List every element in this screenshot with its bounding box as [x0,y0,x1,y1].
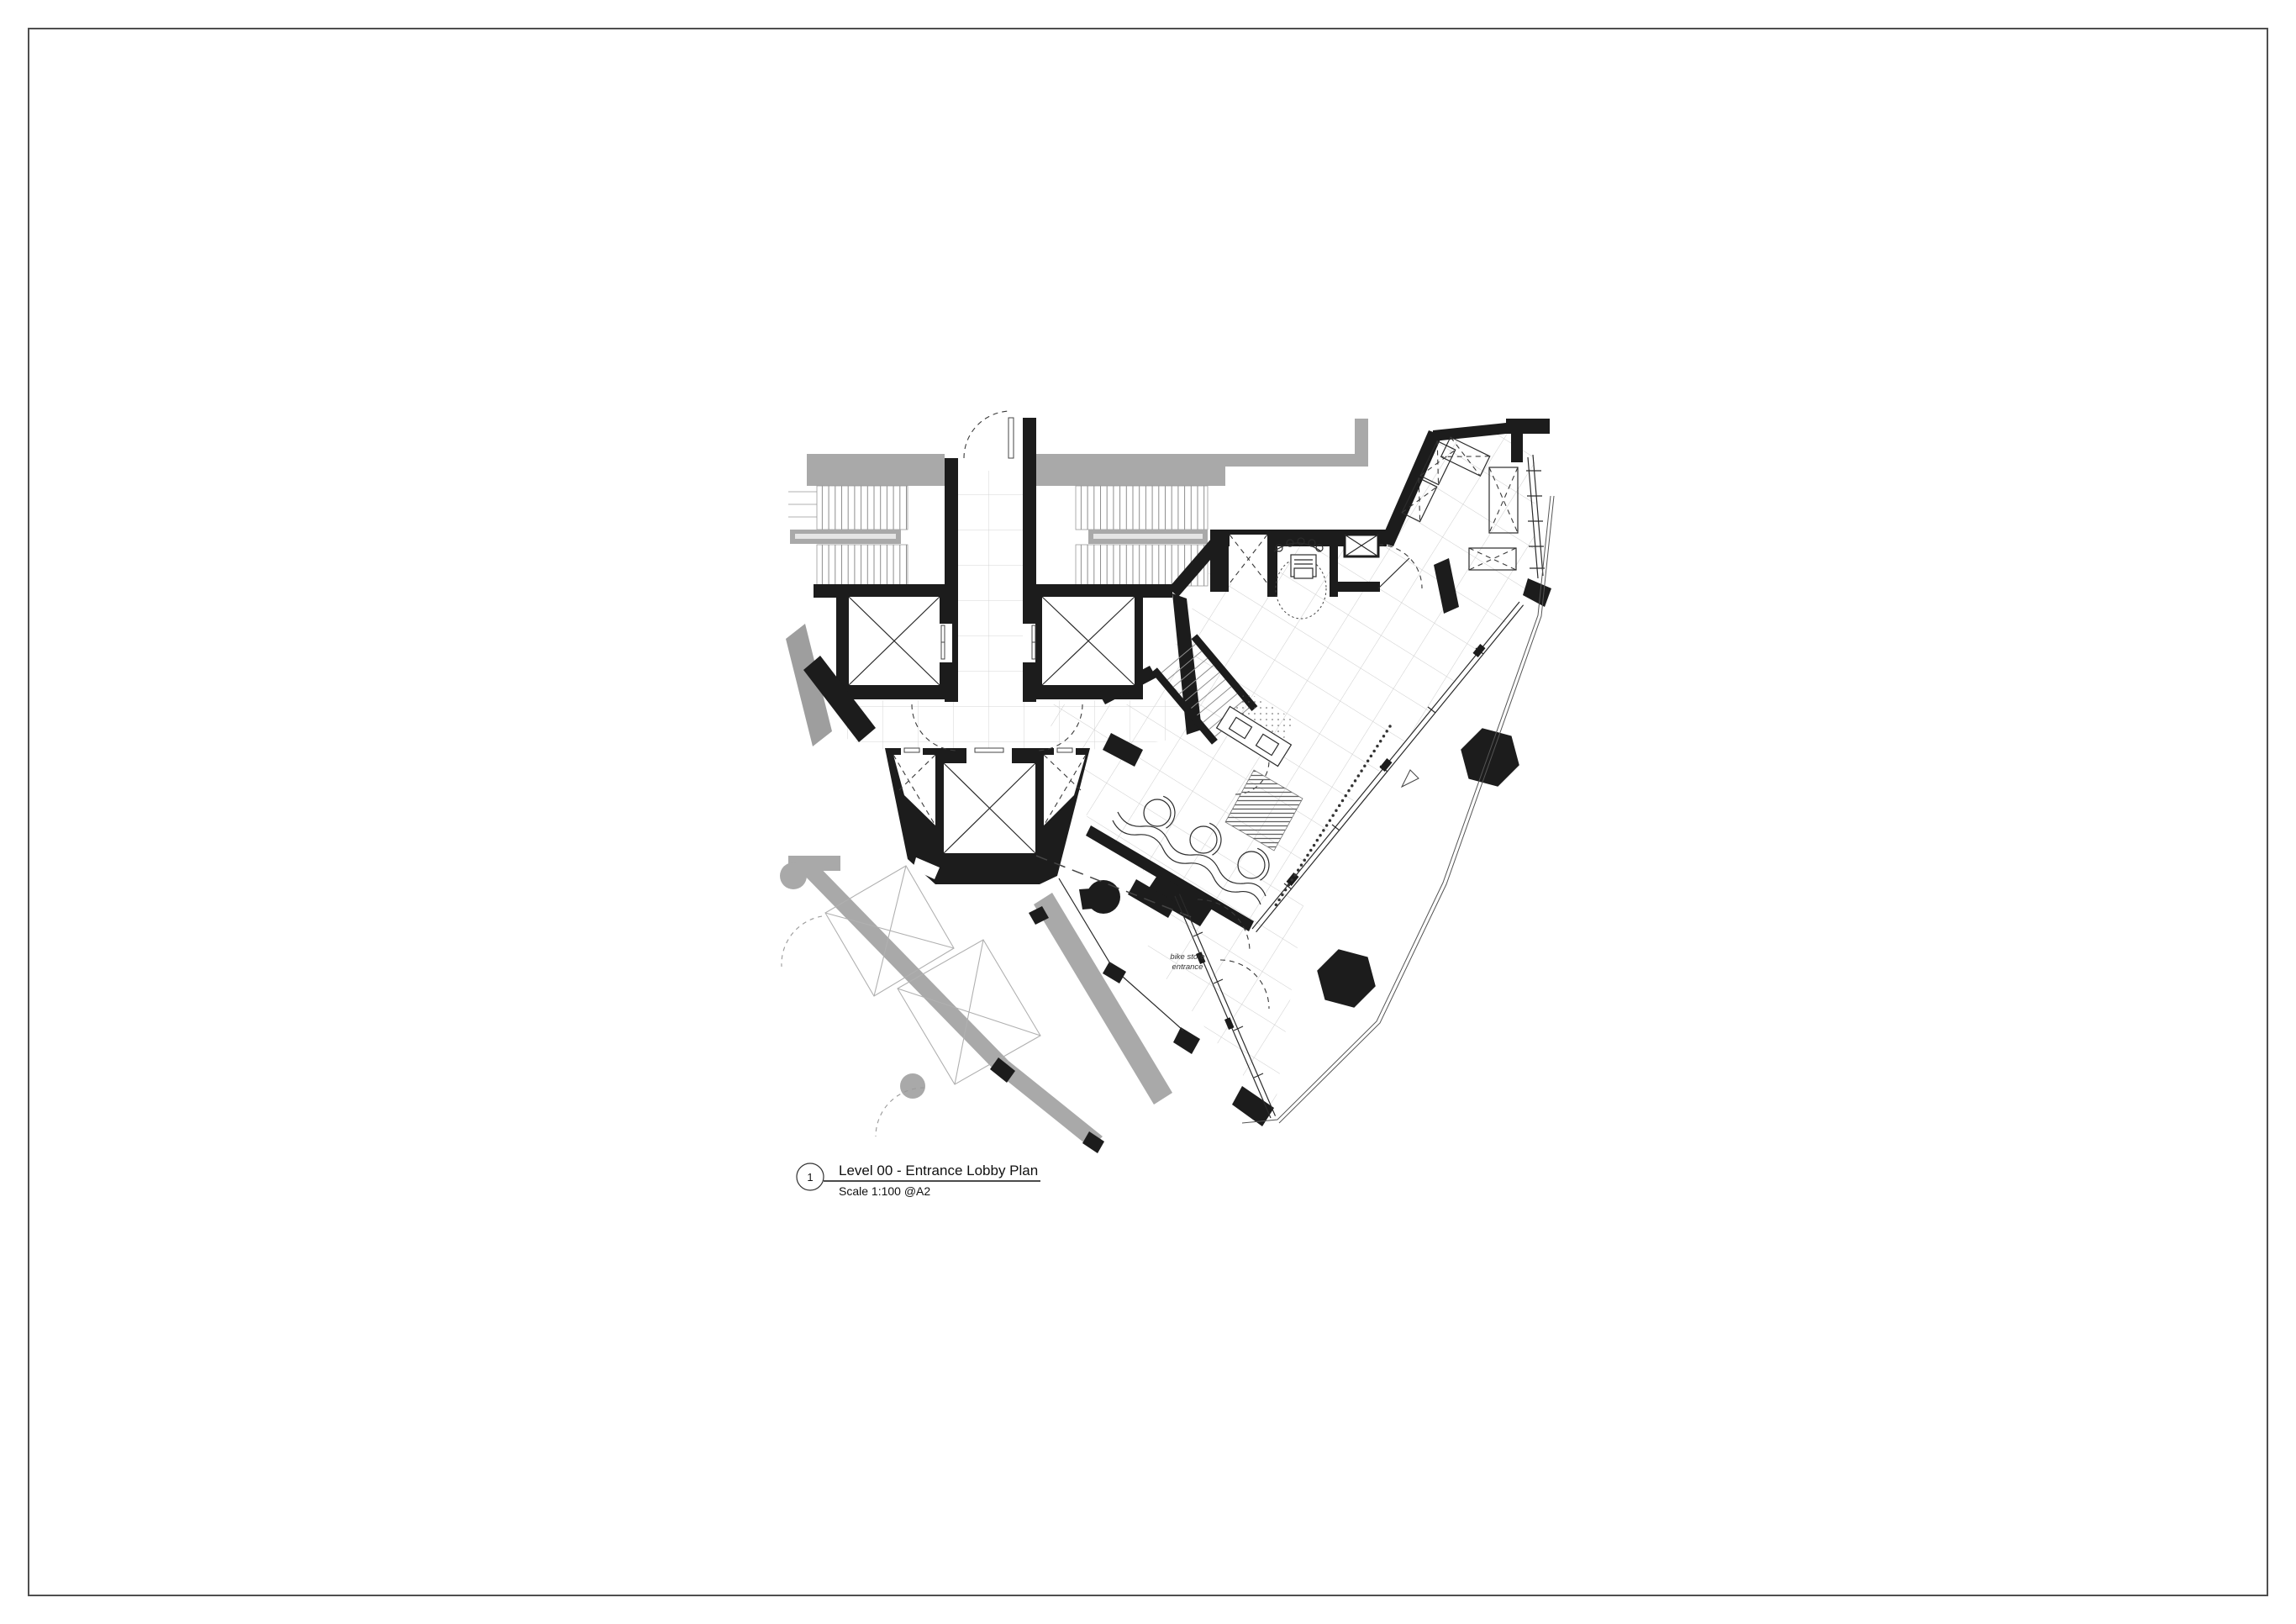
bike-store-label-line1: bike store [1170,952,1204,962]
context-column-circle [900,1073,925,1099]
door-arc-top [964,411,1011,458]
door-leaf-top [1008,418,1014,458]
drawing-title: Level 00 - Entrance Lobby Plan [839,1163,1038,1178]
hex-column-b [1317,949,1376,1008]
stair-context-left [790,486,908,586]
detail-number: 1 [807,1171,813,1184]
column-box-x [1345,535,1378,556]
hex-column-a [1461,728,1519,787]
title-block: 1 Level 00 - Entrance Lobby Plan Scale 1… [797,1163,1040,1198]
drawing-scale: Scale 1:100 @A2 [839,1184,930,1198]
floor-plan-sheet: bike store entrance 1 Level 00 - Entranc… [0,0,2296,1624]
bike-store-label-line2: entrance [1172,962,1203,972]
plaza-triangle-marker [1402,770,1419,787]
context-room-x2 [898,940,1040,1084]
platform-lift-icon [1291,555,1316,578]
context-room-x1 [825,866,954,996]
